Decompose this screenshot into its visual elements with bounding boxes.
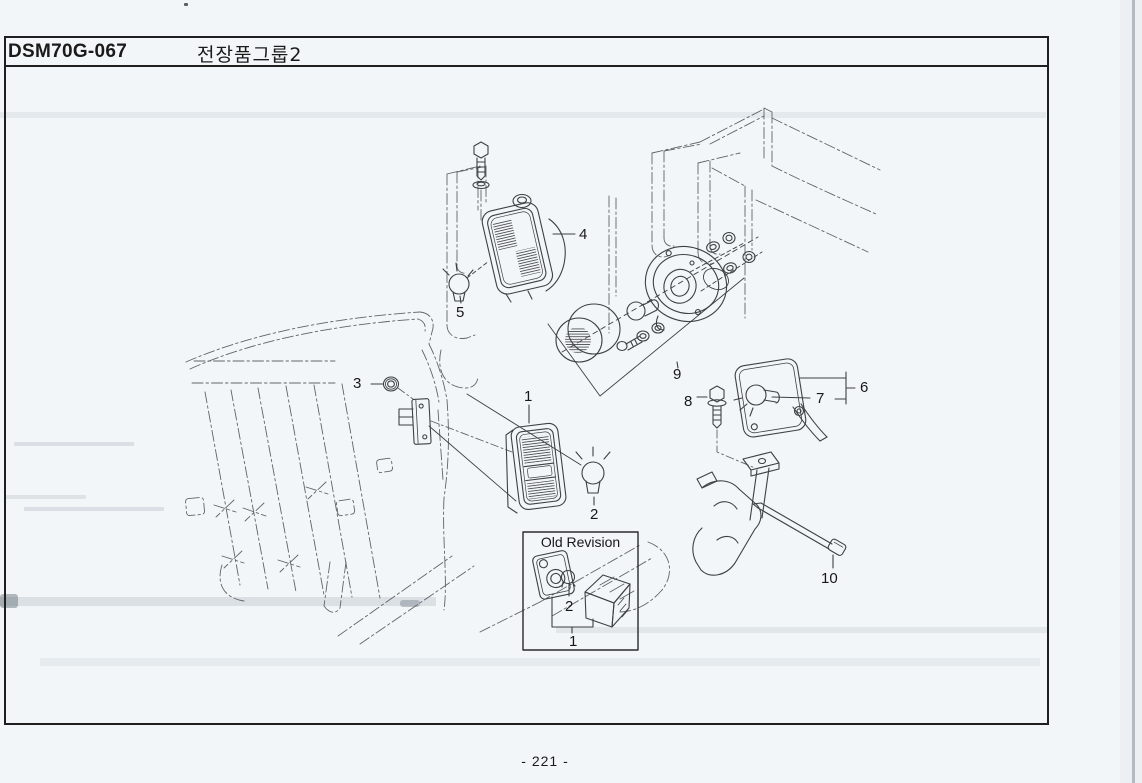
bolt-head: [474, 142, 488, 158]
work-lamp-drawing: [480, 195, 575, 303]
callout-5: 5: [456, 305, 464, 320]
old-revision-callout-2: 2: [565, 599, 573, 614]
callout-6: 6: [860, 380, 868, 395]
exploded-parts-drawing: [0, 0, 1142, 783]
work-lamp-bracket-drawing: [440, 142, 489, 388]
stay-bracket-and-tie-drawing: [693, 452, 847, 575]
flasher-lamp-drawing: [697, 357, 855, 468]
bulb5-drawing: [443, 261, 489, 303]
callout-2: 2: [590, 507, 598, 522]
callout-7: 7: [816, 391, 824, 406]
tractor-body-phantom-drawing: [185, 312, 669, 644]
bulb7-shape: [746, 385, 766, 405]
leader-6-bracket: [800, 372, 855, 404]
callout-9: 9: [673, 367, 681, 382]
old-revision-callout-1: 1: [569, 634, 577, 649]
callout-4: 4: [579, 227, 587, 242]
tail-lamp-drawing: [506, 405, 567, 513]
bulb2-drawing: [576, 447, 610, 505]
callout-8: 8: [684, 394, 692, 409]
old-revision-title: Old Revision: [524, 535, 637, 550]
callout-10: 10: [821, 571, 838, 586]
leader-5: [460, 296, 461, 303]
callout-3: 3: [353, 376, 361, 391]
leader-7: [772, 397, 810, 398]
round-lamp-assembly-drawing: [548, 233, 762, 397]
callout-1: 1: [524, 389, 532, 404]
